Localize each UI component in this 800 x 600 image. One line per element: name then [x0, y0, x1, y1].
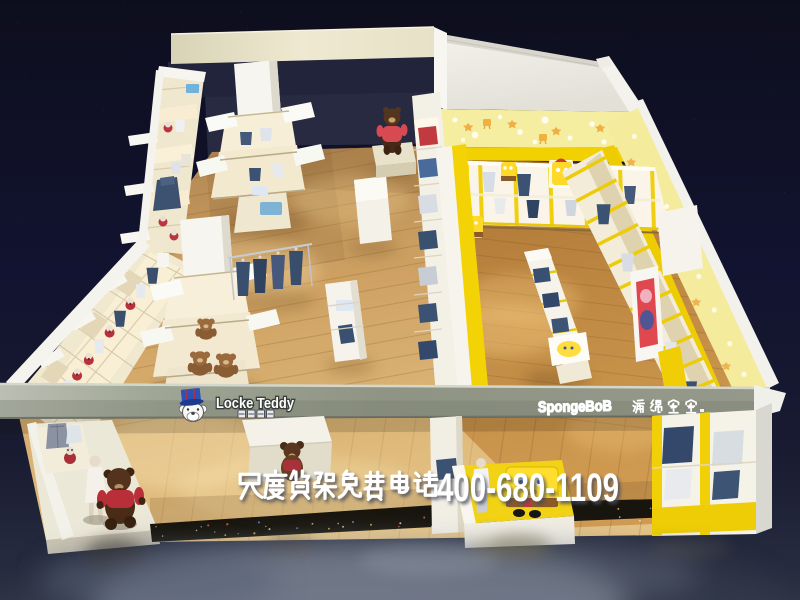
- svg-text:400-680-1109: 400-680-1109: [437, 466, 619, 510]
- svg-text:SpongeBoB: SpongeBoB: [538, 398, 612, 416]
